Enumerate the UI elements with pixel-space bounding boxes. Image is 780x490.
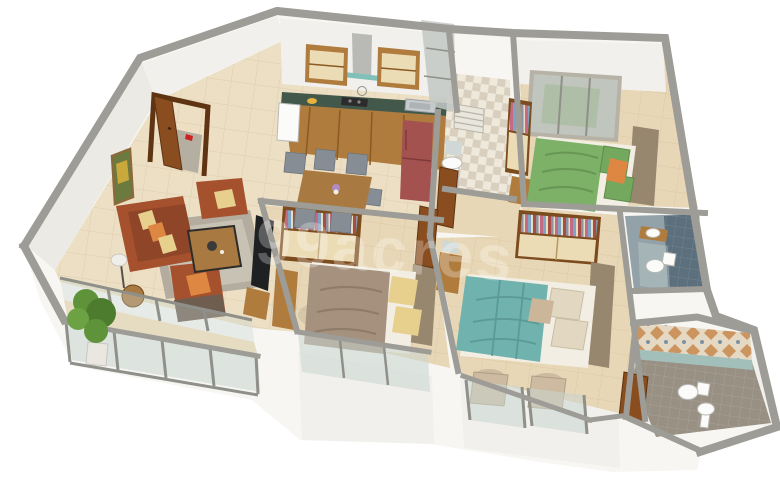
white-appliance bbox=[277, 103, 300, 142]
upper-cabinet bbox=[305, 44, 348, 86]
wardrobe-open bbox=[515, 210, 601, 265]
dining-chair bbox=[314, 149, 336, 171]
pillow bbox=[551, 318, 588, 350]
accent-pillow bbox=[606, 158, 628, 184]
chimney-hood bbox=[352, 33, 372, 80]
mirror bbox=[445, 140, 462, 156]
wall-art bbox=[112, 149, 133, 204]
accent-pillow bbox=[528, 298, 554, 324]
coffee-table bbox=[188, 226, 241, 272]
dining-chair bbox=[284, 152, 306, 174]
upper-cabinet bbox=[377, 47, 420, 90]
floor-plan-render: 99acres bbox=[0, 0, 780, 490]
armchair bbox=[196, 178, 248, 219]
window-large bbox=[526, 70, 622, 142]
sofa-three-seater bbox=[116, 196, 197, 272]
pillow bbox=[392, 306, 422, 336]
fruit-bowl bbox=[307, 98, 317, 104]
dining-chair bbox=[346, 153, 368, 175]
cushion bbox=[214, 189, 236, 209]
refrigerator bbox=[400, 120, 433, 202]
tv-console bbox=[243, 287, 270, 320]
